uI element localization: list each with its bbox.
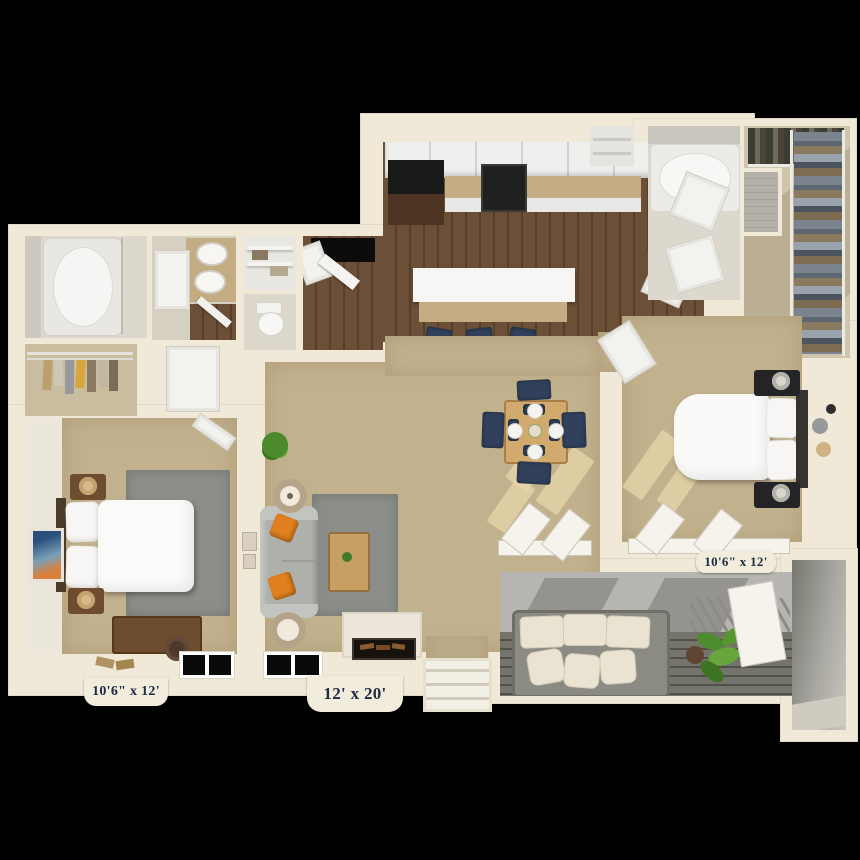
centerpiece bbox=[528, 424, 542, 438]
stove-oven bbox=[481, 164, 527, 212]
hanging-garment bbox=[97, 360, 108, 388]
storage-floor bbox=[792, 695, 846, 730]
lamp-finial bbox=[287, 493, 293, 499]
window bbox=[180, 652, 234, 678]
window-pane bbox=[183, 655, 205, 675]
kitchen-cabinet-dark bbox=[388, 194, 444, 225]
sofa-back-cushion bbox=[563, 614, 607, 646]
fire-log bbox=[376, 645, 390, 650]
island-counter bbox=[413, 268, 575, 302]
open-door bbox=[664, 234, 725, 294]
breakfast-bar bbox=[419, 302, 567, 322]
table-lamp bbox=[277, 619, 299, 641]
headboard bbox=[796, 390, 808, 488]
table-lamp bbox=[772, 484, 790, 502]
bath-wall-shade bbox=[25, 236, 41, 338]
stair-landing bbox=[426, 636, 488, 660]
hanging-garment bbox=[65, 360, 74, 394]
sofa-seat-pillow bbox=[563, 652, 602, 689]
wall-frame bbox=[243, 554, 256, 569]
bed-duvet bbox=[674, 394, 770, 480]
dining-chair bbox=[481, 412, 504, 449]
sofa-cushion-seam bbox=[282, 560, 316, 562]
plate bbox=[527, 403, 543, 419]
hanging-garment bbox=[53, 360, 63, 386]
dining-chair bbox=[561, 412, 586, 449]
hanging-garment bbox=[87, 360, 96, 392]
pantry-shelf bbox=[593, 152, 631, 155]
dimension-label-bedroom-right: 10'6" x 12' bbox=[696, 551, 776, 573]
sink bbox=[194, 270, 226, 294]
floor-plan-image: 10'6" x 12' 12' x 20' 10'6" x 12' bbox=[0, 0, 860, 860]
potted-plant bbox=[262, 432, 288, 458]
glass-partition bbox=[121, 238, 123, 334]
linen-closet bbox=[244, 236, 296, 290]
bathroom-right bbox=[648, 126, 740, 300]
pillow bbox=[65, 501, 100, 542]
table-lamp bbox=[772, 372, 790, 390]
window-pane bbox=[295, 655, 319, 675]
bath-tile-wall bbox=[648, 126, 740, 144]
hanging-garment bbox=[109, 360, 118, 391]
wall-decor-circle bbox=[816, 442, 831, 457]
dimension-label-living-room: 12' x 20' bbox=[307, 676, 403, 712]
patio bbox=[500, 572, 798, 696]
kitchen-floor bbox=[383, 142, 657, 342]
dining-chair bbox=[516, 461, 551, 485]
sofa-seat-pillow bbox=[599, 649, 637, 685]
sink bbox=[196, 242, 228, 266]
refrigerator bbox=[388, 160, 444, 194]
closet-rod bbox=[842, 130, 845, 356]
kitchen-counter bbox=[445, 176, 641, 198]
toilet-bowl bbox=[258, 312, 284, 336]
storage-room bbox=[792, 560, 846, 730]
linens bbox=[252, 250, 268, 260]
toilet-room bbox=[244, 294, 296, 350]
pillow bbox=[65, 545, 100, 588]
linens bbox=[270, 266, 288, 276]
bed-duvet bbox=[98, 500, 194, 592]
garden-tub bbox=[43, 238, 123, 336]
plate bbox=[527, 444, 543, 460]
table-lamp bbox=[77, 591, 95, 609]
pantry-shelf bbox=[593, 138, 631, 141]
shower-niche bbox=[740, 168, 782, 236]
sofa-back-cushion bbox=[519, 615, 564, 649]
table-lamp bbox=[79, 477, 97, 495]
pantry bbox=[590, 126, 634, 166]
window-pane bbox=[267, 655, 291, 675]
kitchen-lower-cabinets bbox=[445, 198, 641, 212]
dining-chair bbox=[516, 379, 551, 401]
tub-basin bbox=[53, 247, 113, 327]
bathroom-left bbox=[25, 236, 147, 338]
table-plant bbox=[342, 552, 352, 562]
hanging-garment bbox=[42, 360, 53, 390]
plate bbox=[548, 423, 564, 439]
pillow bbox=[765, 439, 798, 480]
sofa-seat-pillow bbox=[525, 647, 566, 687]
hanging-garment bbox=[75, 360, 86, 389]
door bbox=[154, 250, 190, 310]
vanity-room bbox=[152, 236, 236, 340]
walk-in-closet-left bbox=[25, 344, 137, 416]
wall-art bbox=[30, 528, 64, 582]
hall-carpet bbox=[385, 336, 600, 376]
wall-decor-circle bbox=[812, 418, 828, 434]
wire-shelf bbox=[27, 352, 133, 355]
wall-frame bbox=[242, 532, 257, 551]
sofa-back-cushion bbox=[605, 615, 650, 649]
coffee-table bbox=[328, 532, 370, 592]
window bbox=[264, 652, 322, 678]
entry-hall bbox=[303, 236, 383, 350]
closet-door-panel bbox=[166, 346, 220, 412]
window-pane bbox=[209, 655, 231, 675]
dimension-label-bedroom-left: 10'6" x 12' bbox=[84, 678, 168, 706]
plate bbox=[507, 423, 523, 439]
wall-decor-circle bbox=[826, 404, 836, 414]
stairs bbox=[423, 658, 492, 712]
pillow bbox=[765, 397, 798, 438]
